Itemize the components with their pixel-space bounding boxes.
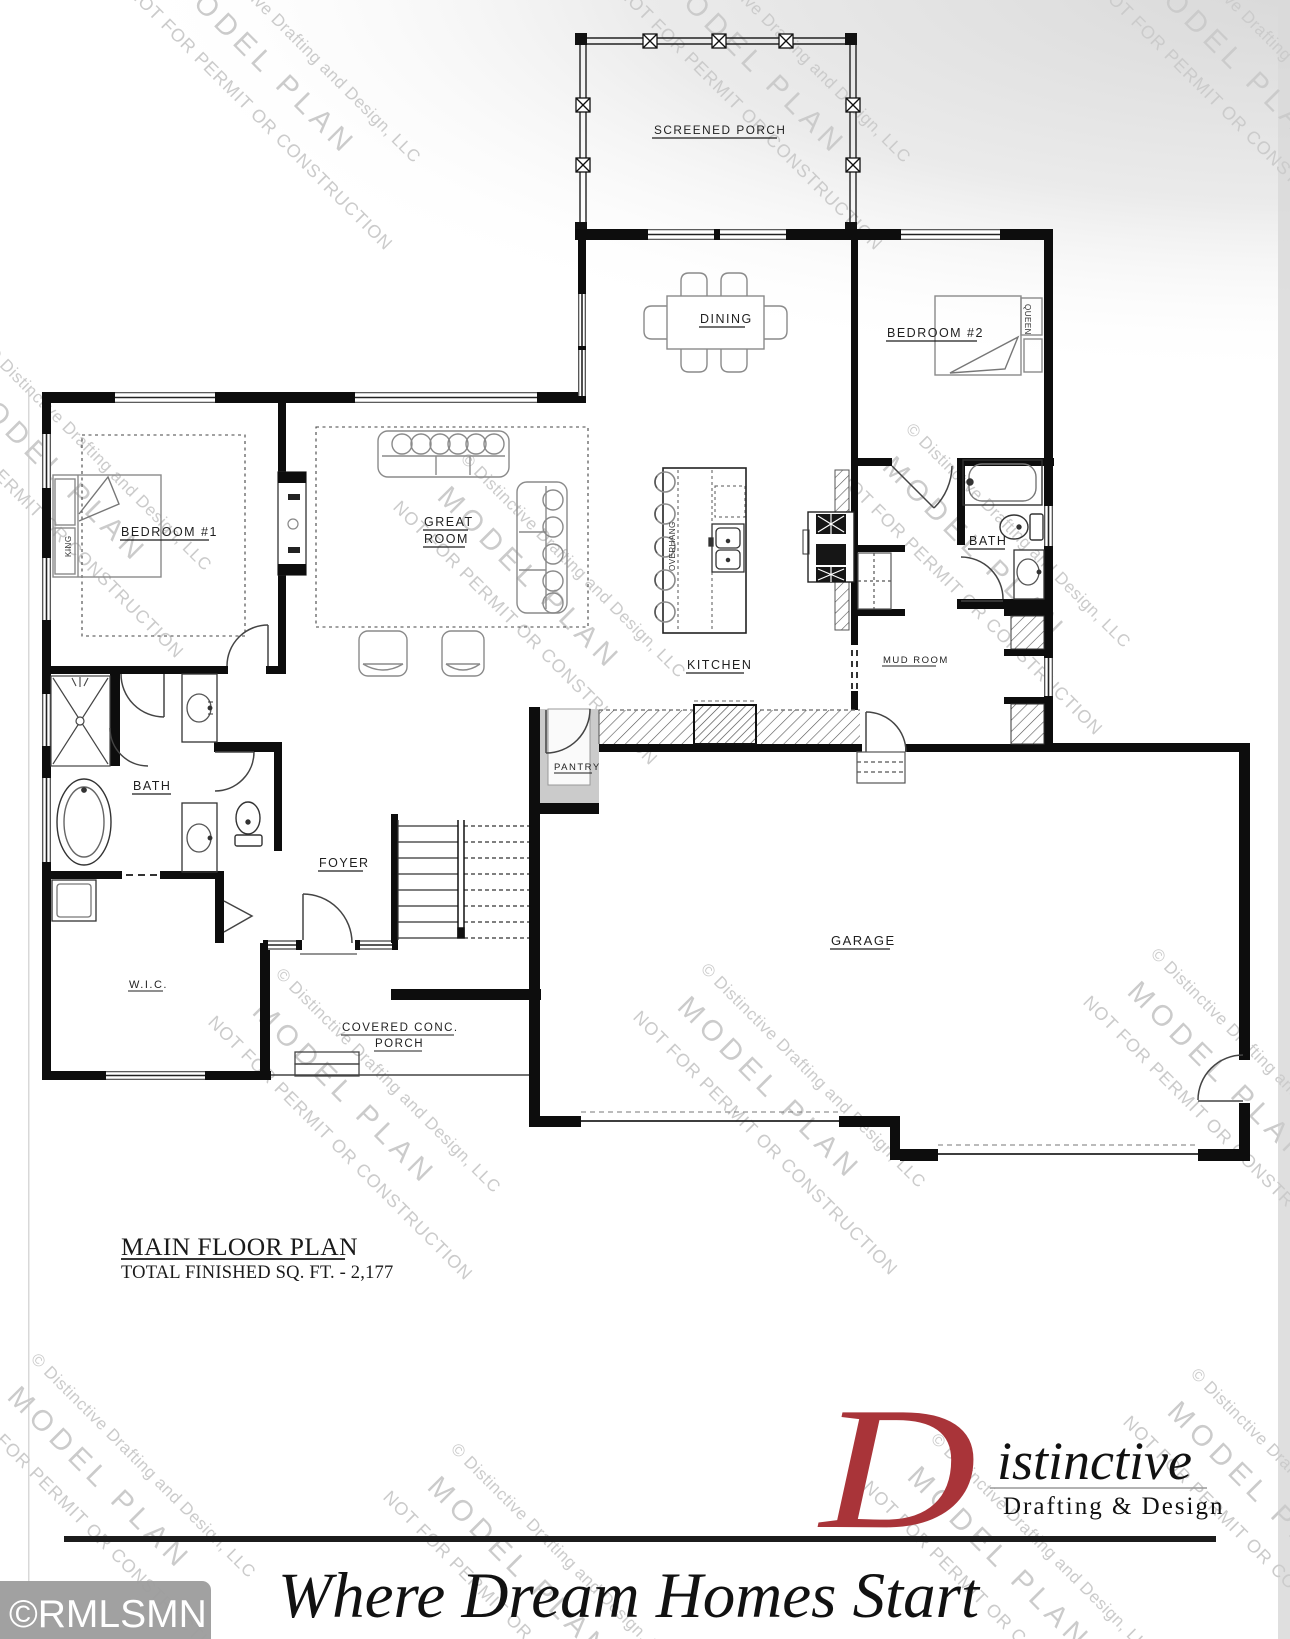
svg-text:DINING: DINING (700, 312, 753, 326)
svg-text:GARAGE: GARAGE (831, 933, 896, 948)
svg-text:SCREENED PORCH: SCREENED PORCH (654, 123, 786, 137)
svg-text:ROOM: ROOM (424, 532, 469, 546)
svg-text:MUD ROOM: MUD ROOM (883, 655, 949, 666)
svg-text:BATH: BATH (133, 779, 171, 793)
svg-text:©RMLSMN: ©RMLSMN (9, 1593, 207, 1636)
svg-text:istinctive: istinctive (997, 1431, 1192, 1491)
svg-text:GREAT: GREAT (424, 515, 474, 529)
svg-text:OVERHANG: OVERHANG (668, 521, 677, 571)
svg-text:W.I.C.: W.I.C. (129, 979, 168, 991)
svg-text:KING: KING (64, 535, 73, 557)
svg-text:BATH: BATH (969, 534, 1007, 548)
svg-text:MAIN FLOOR PLAN: MAIN FLOOR PLAN (121, 1232, 358, 1261)
svg-text:FOYER: FOYER (319, 856, 370, 870)
svg-text:COVERED CONC.: COVERED CONC. (342, 1022, 459, 1034)
svg-text:Where Dream Homes Start: Where Dream Homes Start (278, 1560, 981, 1632)
svg-text:QUEEN: QUEEN (1023, 304, 1032, 335)
svg-text:Drafting & Design: Drafting & Design (1003, 1493, 1224, 1520)
svg-text:PORCH: PORCH (375, 1038, 424, 1050)
svg-text:BEDROOM #2: BEDROOM #2 (887, 326, 984, 340)
svg-text:KITCHEN: KITCHEN (687, 658, 752, 672)
svg-text:PANTRY: PANTRY (554, 762, 601, 773)
svg-text:BEDROOM #1: BEDROOM #1 (121, 525, 218, 539)
svg-text:TOTAL FINISHED SQ. FT. - 2,177: TOTAL FINISHED SQ. FT. - 2,177 (121, 1263, 393, 1283)
